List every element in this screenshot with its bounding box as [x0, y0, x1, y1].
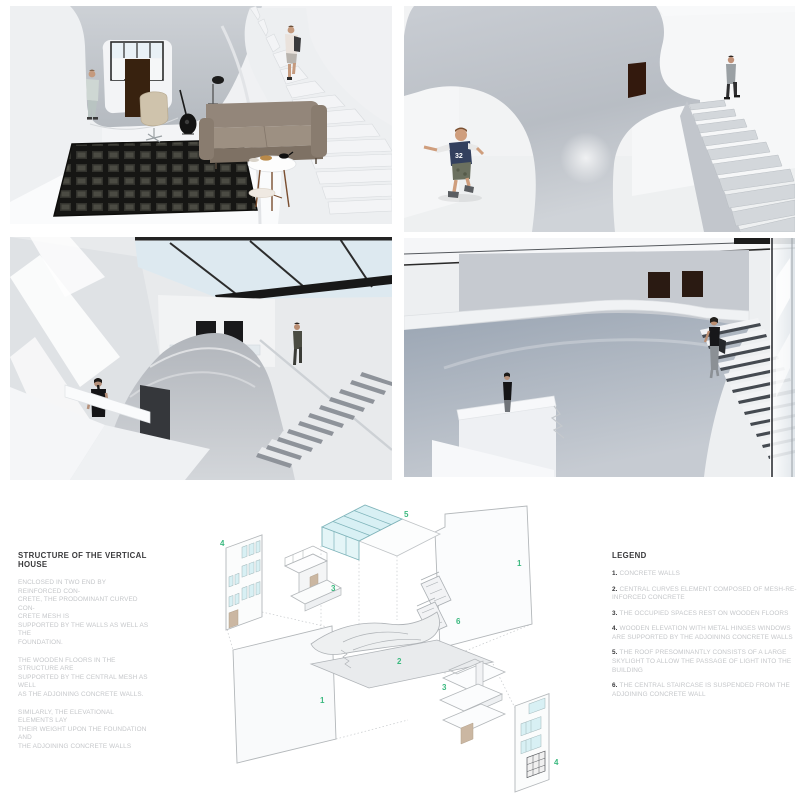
legend-item: 1.CONCRETE WALLS	[612, 570, 798, 579]
legend-item-text: WOODEN ELEVATION WITH METAL HINGES WINDO…	[612, 625, 793, 641]
skylight-hall-scene	[10, 237, 392, 480]
render-funnel-hall: 32	[404, 6, 795, 232]
living-room-scene	[10, 6, 392, 224]
diagram-label-1b: 1	[320, 696, 325, 705]
diagram-label-4b: 4	[554, 758, 559, 767]
render-ramp-hall	[404, 238, 795, 477]
diagram-wall-top-right	[435, 506, 532, 648]
diagram-label-6: 6	[456, 617, 461, 626]
light-spot	[560, 132, 612, 184]
dark-door-panel	[682, 271, 703, 297]
structure-paragraph: ENCLOSED IN TWO END BY REINFORCED CON- C…	[18, 579, 150, 648]
diagram-label-3a: 3	[331, 584, 336, 593]
diagram-label-2: 2	[397, 657, 402, 666]
render-living-room	[10, 6, 392, 224]
legend-item-text: THE OCCUPIED SPACES REST ON WOODEN FLOOR…	[620, 610, 789, 617]
diagram-label-4a: 4	[220, 539, 225, 548]
exploded-axonometric-diagram: 4 3 5 1 6 2 1 3 4	[193, 492, 603, 797]
jersey-number: 32	[455, 153, 463, 160]
legend-item-text: CONCRETE WALLS	[620, 570, 680, 577]
legend-item-text: CENTRAL CURVES ELEMENT COMPOSED OF MESH-…	[612, 586, 797, 602]
legend-item-number: 2.	[612, 586, 618, 593]
facade-door	[229, 610, 238, 628]
diagram-facade-right	[515, 694, 549, 792]
legend: LEGEND 1.CONCRETE WALLS 2.CENTRAL CURVES…	[612, 551, 798, 706]
presentation-board: 32	[0, 0, 800, 800]
structure-paragraph: SIMILARLY, THE ELEVATIONAL ELEMENTS LAY …	[18, 709, 150, 752]
legend-item-number: 3.	[612, 610, 618, 617]
glass-wall	[770, 238, 795, 477]
legend-item-number: 5.	[612, 649, 618, 656]
doorway	[628, 62, 646, 98]
diagram-label-5: 5	[404, 510, 409, 519]
structure-note: STRUCTURE OF THE VERTICAL HOUSE ENCLOSED…	[18, 551, 150, 760]
dark-door-panel	[648, 272, 670, 298]
legend-item-number: 1.	[612, 570, 618, 577]
diagram-facade-left	[226, 535, 262, 630]
funnel-hall-scene: 32	[404, 6, 795, 232]
legend-title: LEGEND	[612, 551, 798, 560]
diagram-label-3b: 3	[442, 683, 447, 692]
structure-title: STRUCTURE OF THE VERTICAL HOUSE	[18, 551, 150, 569]
render-skylight-hall	[10, 237, 392, 480]
bowl	[260, 155, 272, 160]
legend-item: 4.WOODEN ELEVATION WITH METAL HINGES WIN…	[612, 625, 798, 642]
legend-item: 6.THE CENTRAL STAIRCASE IS SUSPENDED FRO…	[612, 682, 798, 699]
diagram-label-1a: 1	[517, 559, 522, 568]
legend-item: 3.THE OCCUPIED SPACES REST ON WOODEN FLO…	[612, 610, 798, 619]
legend-item-number: 4.	[612, 625, 618, 632]
structure-paragraph: THE WOODEN FLOORS IN THE STRUCTURE ARE S…	[18, 657, 150, 700]
diagram-floor-right	[440, 659, 505, 744]
diagram-skylight	[322, 505, 440, 560]
legend-item-text: THE ROOF PRESOMINANTLY CONSISTS OF A LAR…	[612, 649, 791, 673]
legend-item-text: THE CENTRAL STAIRCASE IS SUSPENDED FROM …	[612, 682, 790, 698]
diagram-canvas: 4 3 5 1 6 2 1 3 4	[193, 492, 603, 797]
plate	[249, 158, 259, 162]
legend-item: 5.THE ROOF PRESOMINANTLY CONSISTS OF A L…	[612, 649, 798, 675]
legend-item: 2.CENTRAL CURVES ELEMENT COMPOSED OF MES…	[612, 586, 798, 603]
ramp-hall-scene	[404, 238, 795, 477]
legend-item-number: 6.	[612, 682, 618, 689]
diagram-floor-left	[285, 546, 341, 611]
